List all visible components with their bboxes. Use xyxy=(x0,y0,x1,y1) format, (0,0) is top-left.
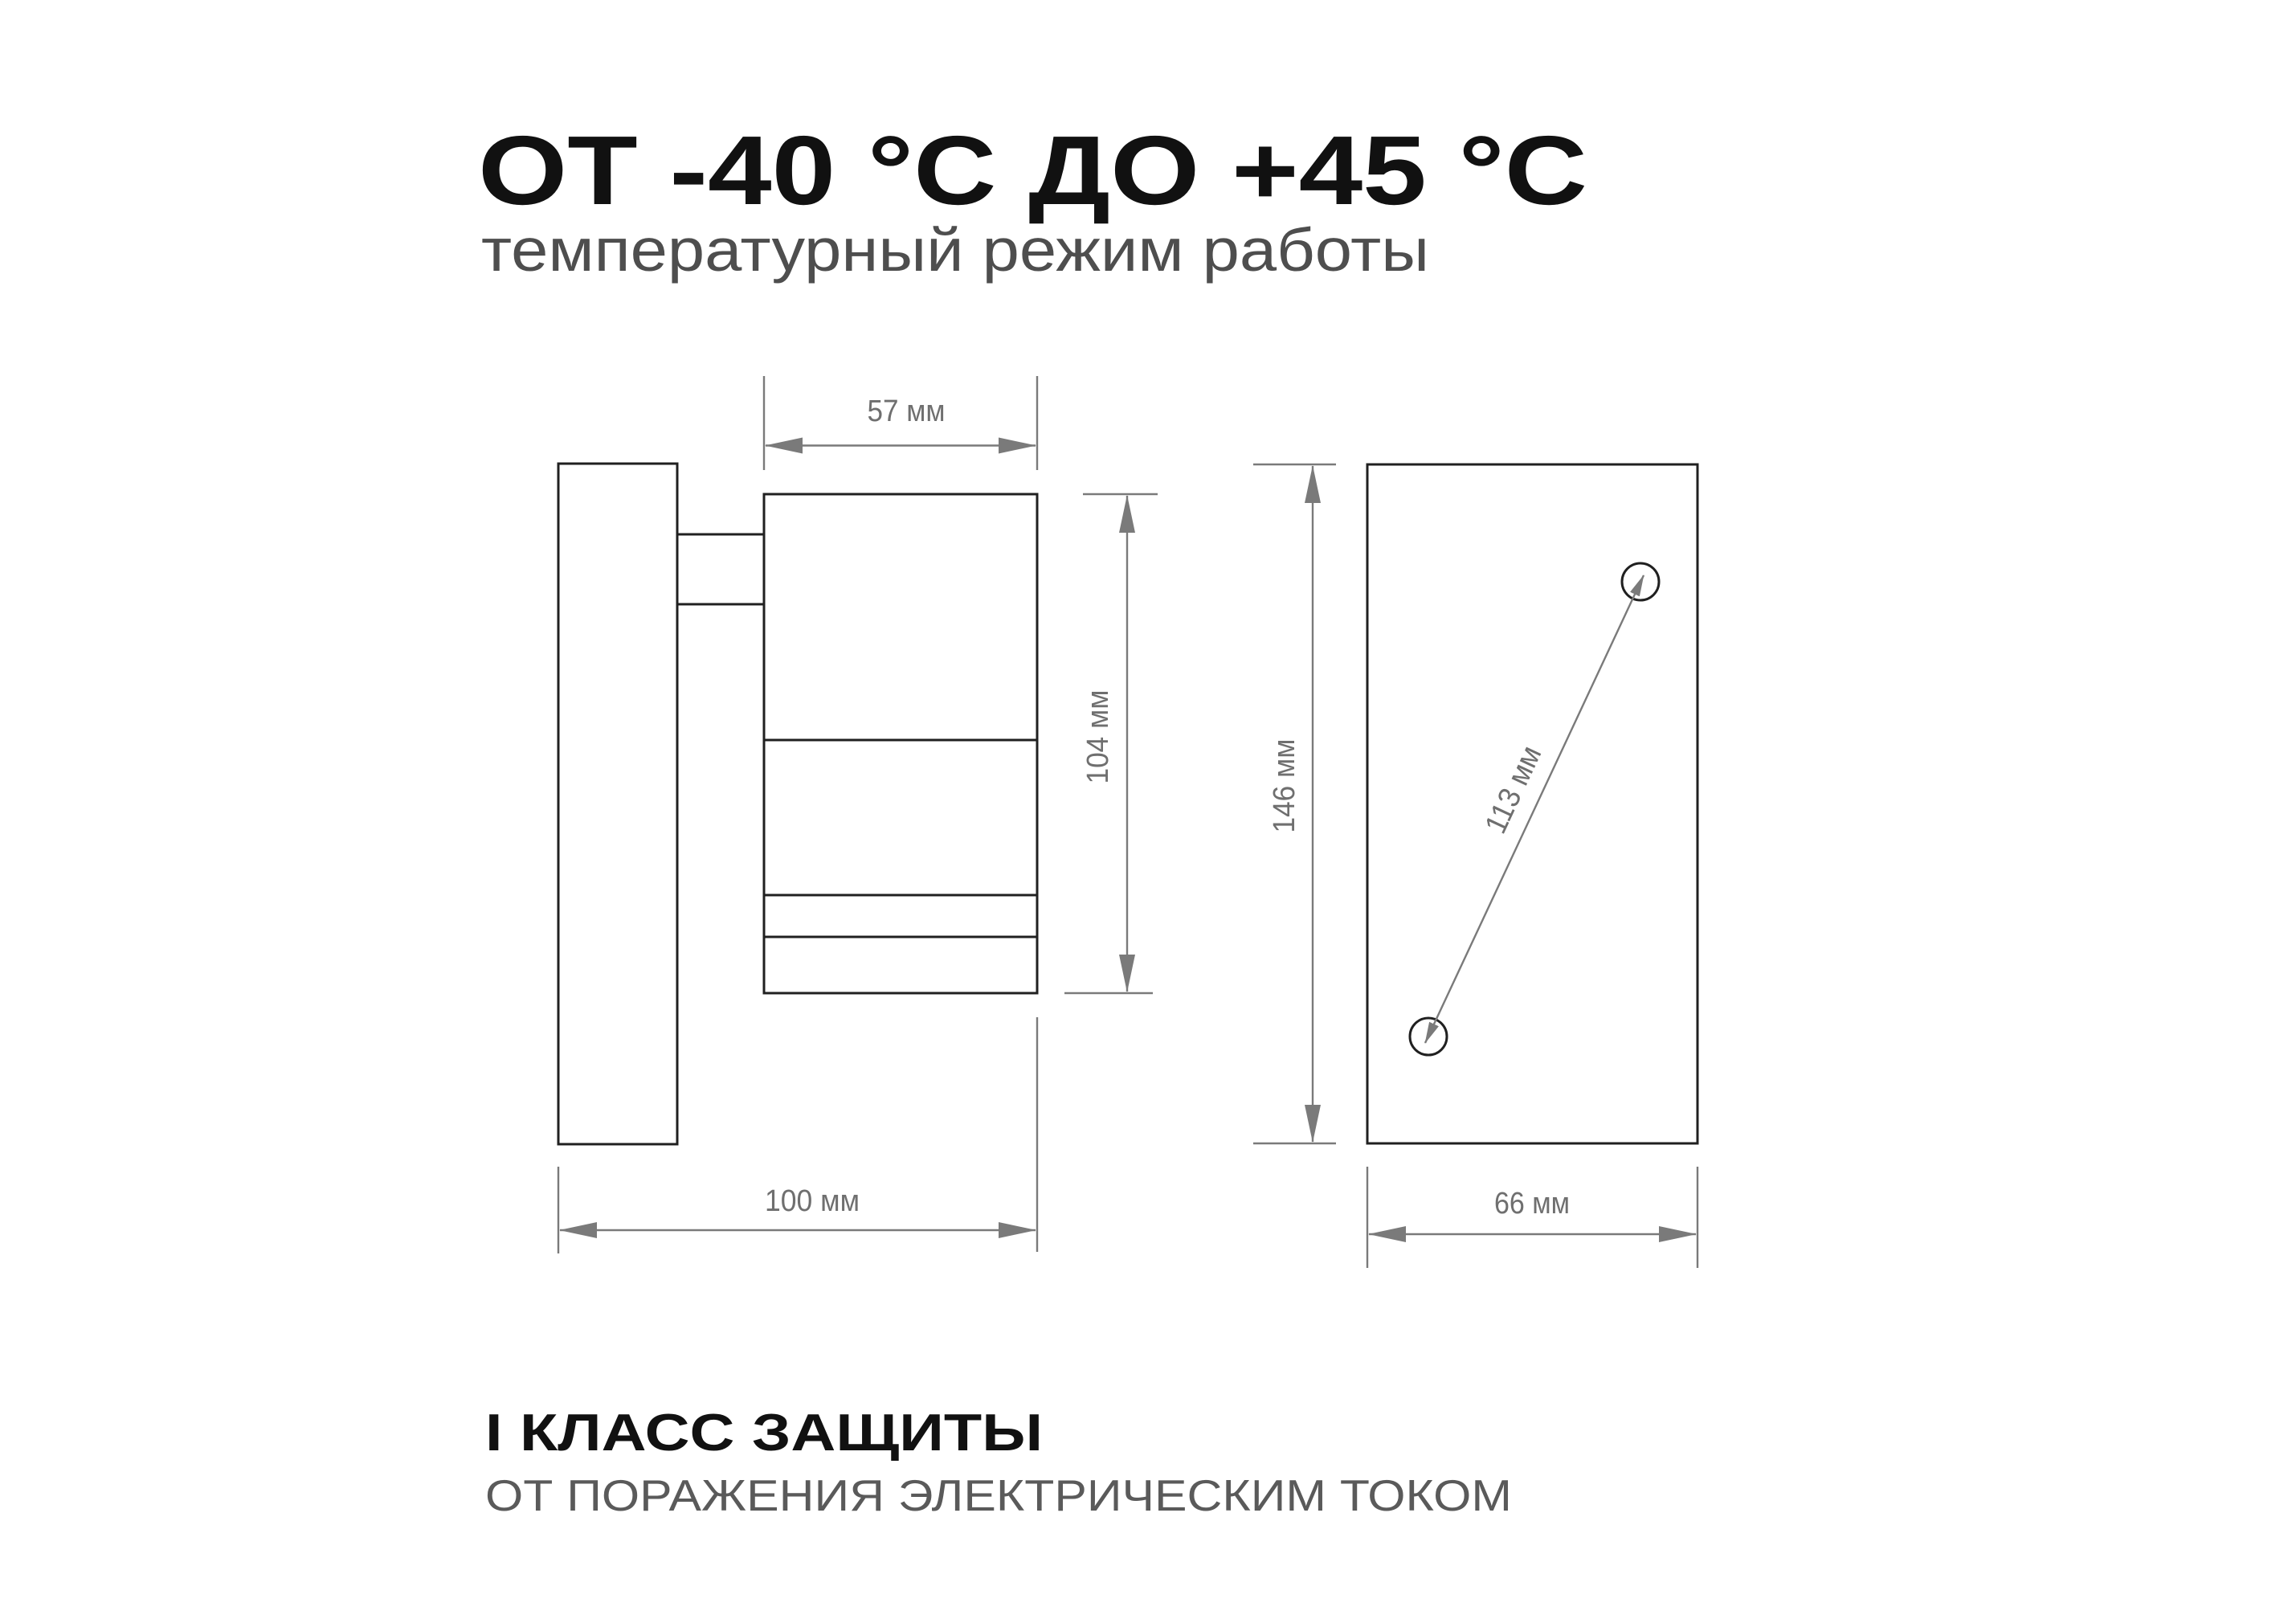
svg-text:температурный режим работы: температурный режим работы xyxy=(481,216,1429,284)
svg-text:57 мм: 57 мм xyxy=(868,395,946,428)
svg-text:ОТ -40 °С ДО +45 °С: ОТ -40 °С ДО +45 °С xyxy=(478,116,1587,225)
svg-text:146 мм: 146 мм xyxy=(1268,739,1301,833)
svg-text:I КЛАСС ЗАЩИТЫ: I КЛАСС ЗАЩИТЫ xyxy=(485,1403,1043,1462)
svg-text:ОТ ПОРАЖЕНИЯ ЭЛЕКТРИЧЕСКИМ ТОК: ОТ ПОРАЖЕНИЯ ЭЛЕКТРИЧЕСКИМ ТОКОМ xyxy=(485,1470,1512,1520)
svg-text:100 мм: 100 мм xyxy=(765,1184,860,1218)
svg-text:104 мм: 104 мм xyxy=(1081,690,1115,784)
svg-text:66 мм: 66 мм xyxy=(1494,1187,1570,1221)
